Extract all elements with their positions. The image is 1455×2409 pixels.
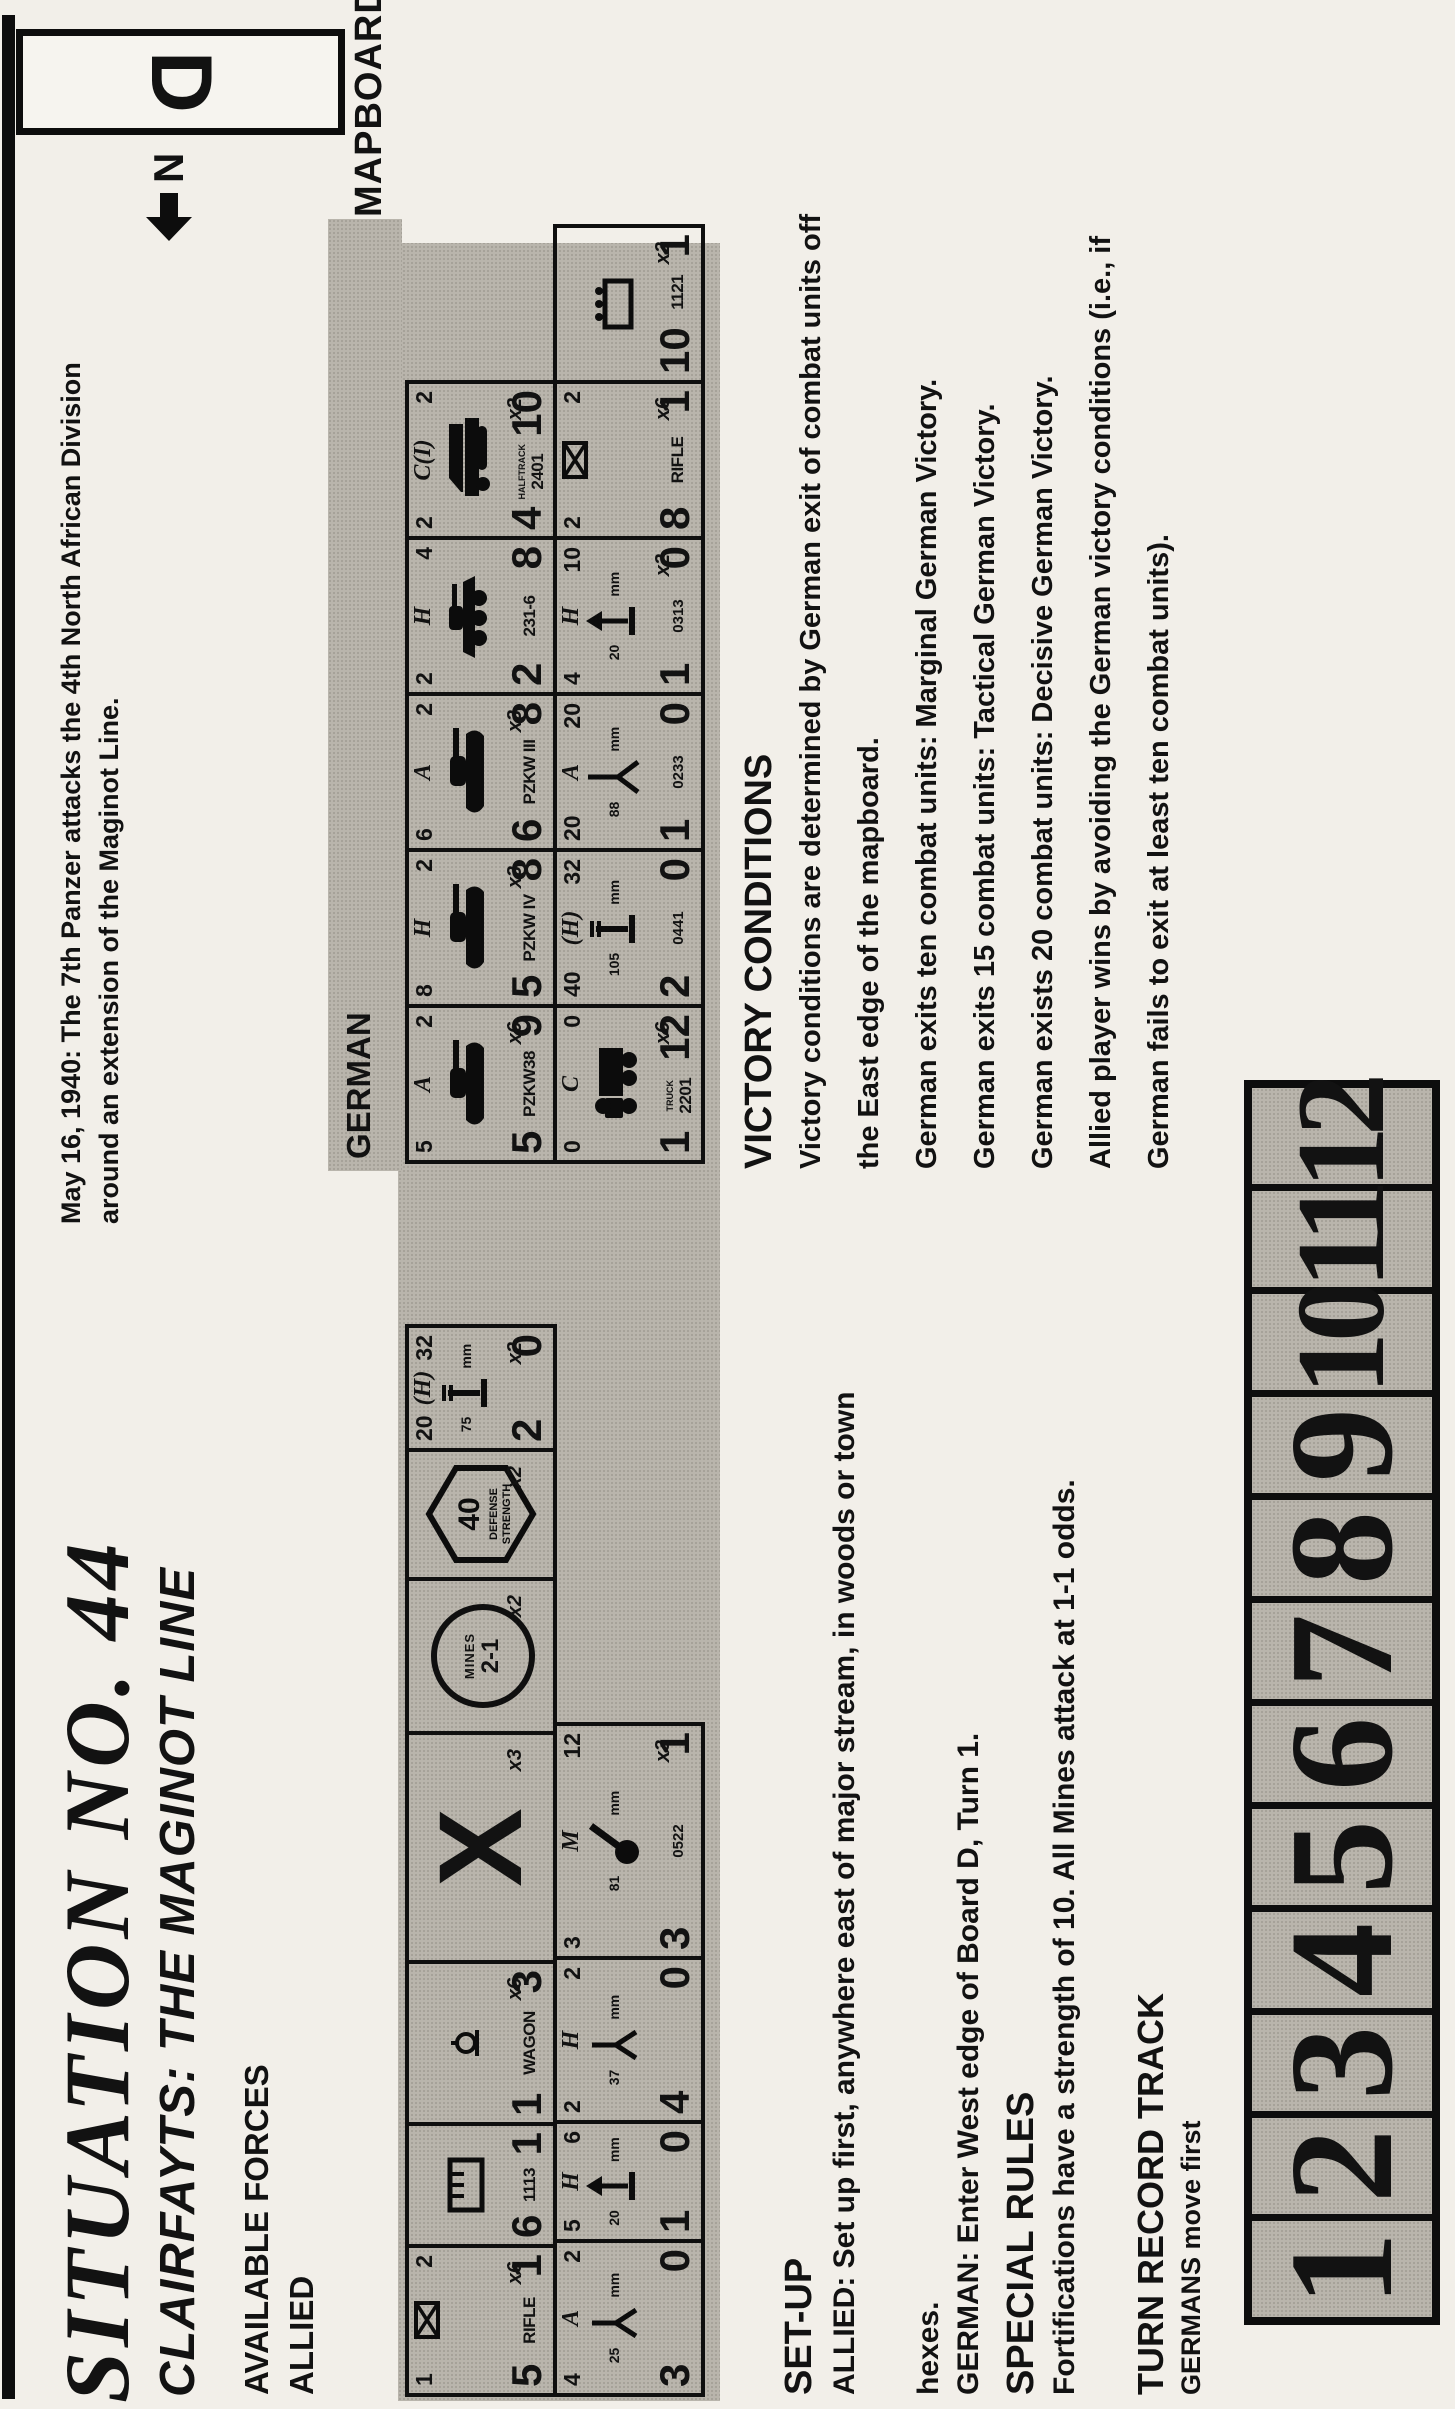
setup-heading: SET-UP <box>778 2258 821 2395</box>
situation-card: SITUATION NO. 44 CLAIRFAYTS: THE MAGINOT… <box>0 0 1455 2409</box>
counter-unit-name: WAGON <box>520 2011 539 2075</box>
counter-multiplier: x2 <box>504 1595 527 1617</box>
svg-text:DEFENSE: DEFENSE <box>488 1489 500 1541</box>
page-subtitle: CLAIRFAYTS: THE MAGINOT LINE <box>150 1567 206 2397</box>
gun-mm-label: mm <box>606 2137 622 2162</box>
counter-class-letter: H <box>410 540 437 692</box>
counter-box: 6A26PZKW III8x3 <box>405 692 557 852</box>
counter-class-letter: H <box>410 852 437 1004</box>
mines-label: MINES <box>462 1633 477 1679</box>
gun-mm-label: mm <box>606 572 622 597</box>
counter-box: 1WAGON3x6 <box>405 1960 557 2126</box>
counter-movement-value: 0 <box>653 1966 697 1989</box>
counter-range-value: 20 <box>559 703 586 729</box>
counter-multiplier: x6 <box>652 398 675 420</box>
counter-icon-zone: 88mm <box>583 696 645 848</box>
counter-defense-value: 6 <box>505 2215 549 2238</box>
counter-unit-name: 1121 <box>668 275 687 310</box>
counter-class-letter: C <box>558 1008 585 1160</box>
counter-box: 40(H)32105mm204410 <box>553 848 705 1008</box>
counter-multiplier: x2 <box>652 554 675 576</box>
mapboard-diagram: D <box>16 29 345 135</box>
counter-movement-value: 0 <box>653 2249 697 2272</box>
counter-movement-value: 0 <box>653 2130 697 2153</box>
counter-movement-value: 8 <box>505 546 549 569</box>
counter-unit-name: RIFLE <box>520 2297 539 2344</box>
counter-icon-zone: 75mm <box>435 1328 497 1448</box>
gun-caliber-label: 105 <box>606 953 622 976</box>
counter-multiplier: x2 <box>504 1466 527 1488</box>
counter-unit-name: 2201 <box>676 1078 695 1114</box>
counter-unit-name: 1113 <box>520 2168 539 2202</box>
turn-track-cell-3: 3 <box>1252 2008 1432 2111</box>
counter-range-value: 32 <box>559 859 586 885</box>
counter-multiplier: x3 <box>504 710 527 732</box>
counter-movement-value: 0 <box>653 702 697 725</box>
counter-range-value: 2 <box>559 1967 586 1980</box>
victory-line-5: German exists 20 combat units: Decisive … <box>1027 375 1060 1169</box>
counter-unit-name: PZKW38 <box>520 1051 539 1117</box>
counter-box: 20(H)3275mm20x2 <box>405 1324 557 1452</box>
north-letter: N <box>145 153 193 183</box>
mines-odds: 2-1 <box>477 1639 505 1674</box>
counter-multiplier: x2 <box>504 398 527 420</box>
counter-range-value: 0 <box>559 1015 586 1028</box>
counter-class-letter: M <box>558 1726 585 1956</box>
intro-text-2: around an extension of the Maginot Line. <box>90 362 128 1224</box>
counter-defense-value: 5 <box>505 1131 549 1154</box>
howitzer-icon <box>586 907 642 951</box>
counter-box: 1011211x2 <box>553 224 705 384</box>
counter-box: 2H42231-68 <box>405 536 557 696</box>
counter-range-value: 2 <box>411 2255 438 2268</box>
counter-defense-value: 1 <box>505 2093 549 2116</box>
counter-multiplier: x6 <box>504 2262 527 2284</box>
north-arrow-icon <box>140 189 198 243</box>
turn-track-cell-2: 2 <box>1252 2111 1432 2214</box>
turn-record-track-heading: TURN RECORD TRACK <box>1130 1993 1172 2395</box>
counter-defense-value: 5 <box>505 2364 549 2387</box>
counter-defense-value: 2 <box>505 1419 549 1442</box>
german-counter-row-1: 5A25PZKW389x68H25PZKW IV8x36A26PZKW III8… <box>405 384 557 1164</box>
mines-icon: MINES2-1 <box>431 1604 535 1708</box>
gun-caliber-label: 75 <box>458 1417 474 1433</box>
gun-caliber-label: 20 <box>606 2210 622 2226</box>
victory-line-6: Allied player wins by avoiding the Germa… <box>1085 236 1118 1169</box>
counter-unit-id: 0522 <box>670 1824 687 1857</box>
counter-box: 8H25PZKW IV8x3 <box>405 848 557 1008</box>
counter-unit-id: 0233 <box>670 755 687 788</box>
truck-silhouette-icon <box>587 1038 641 1130</box>
gun-mm-label: mm <box>606 2273 622 2298</box>
counter-unit-name: 2401 <box>528 454 547 490</box>
setup-line-1: ALLIED: Set up first, anywhere east of m… <box>828 1392 862 2396</box>
counter-icon-zone <box>583 1008 645 1160</box>
counter-icon-zone: 25mm <box>583 2243 645 2393</box>
counter-multiplier: x6 <box>652 1022 675 1044</box>
counter-box: 2C(I)24HALFTRACK240110x2 <box>405 380 557 540</box>
gun-mm-label: mm <box>606 1791 622 1816</box>
turn-track-cell-7: 7 <box>1252 1596 1432 1699</box>
intro-date: May 16, 1940: <box>56 1050 86 1224</box>
german-counter-row-2: 0C01TRUCK220112x640(H)32105mm20441020A20… <box>553 228 705 1164</box>
counter-box: 125RIFLE1x6 <box>405 2244 557 2397</box>
special-rules-line-1: Fortifications have a strength of 10. Al… <box>1048 1479 1082 2395</box>
turn-track-cell-8: 8 <box>1252 1493 1432 1596</box>
mines-counter-box: MINES2-1x2 <box>405 1577 557 1735</box>
counter-box: 228RIFLE1x6 <box>553 380 705 540</box>
counter-multiplier: x6 <box>504 1978 527 2000</box>
counter-box: 5A25PZKW389x6 <box>405 1004 557 1164</box>
counter-range-value: 6 <box>559 2131 586 2144</box>
gun-mm-label: mm <box>606 880 622 905</box>
turn-record-track: 123456789101112 <box>1244 1080 1440 2325</box>
tank-silhouette-icon <box>440 880 492 976</box>
counter-defense-value: 2 <box>653 975 697 998</box>
special-rules-heading: SPECIAL RULES <box>1000 2092 1043 2395</box>
counter-icon-zone: 20mm <box>583 540 645 692</box>
counter-range-value: 10 <box>559 547 586 573</box>
counter-range-value: 32 <box>411 1335 438 1361</box>
fort-counter-box: 40DEFENSESTRENGTHx2 <box>405 1448 557 1581</box>
counter-defense-value: 5 <box>505 975 549 998</box>
counter-unit-name: 231-6 <box>520 596 539 637</box>
counter-defense-value: 6 <box>505 819 549 842</box>
gun-caliber-label: 20 <box>606 645 622 661</box>
victory-line-7: German fails to exit at least ten combat… <box>1143 534 1176 1169</box>
block-counter-box: Xx3 <box>405 1731 557 1964</box>
counter-unit-name: PZKW III <box>520 740 539 805</box>
counter-range-value: 2 <box>411 703 438 716</box>
block-x-symbol: X <box>409 1735 553 1960</box>
victory-line-4: German exits 15 combat units: Tactical G… <box>969 403 1002 1169</box>
gun-caliber-label: 88 <box>606 802 622 818</box>
counter-multiplier: x2 <box>504 1342 527 1364</box>
counter-range-value: 2 <box>411 1015 438 1028</box>
counter-defense-value: 1 <box>653 663 697 686</box>
counter-box: 611131 <box>405 2122 557 2248</box>
counter-defense-value: 8 <box>653 507 697 530</box>
counter-class-letter: H <box>558 1960 585 2120</box>
counter-range-value: 4 <box>411 547 438 560</box>
at-gun-icon <box>588 2300 640 2346</box>
counter-unit-id: 0441 <box>670 911 687 944</box>
allied-heading: ALLIED <box>283 2276 321 2395</box>
top-rule <box>2 15 15 2399</box>
armored-car-silhouette-icon <box>441 570 491 662</box>
counter-defense-value: 1 <box>653 1131 697 1154</box>
allied-counter-row-2: 4A225mm305H620mm102H237mm403M1281mm30522… <box>553 1726 705 2397</box>
counter-multiplier: x6 <box>504 1022 527 1044</box>
counter-multiplier: x3 <box>652 1740 675 1762</box>
counter-defense-value: 1 <box>653 2210 697 2233</box>
counter-icon-zone: 105mm <box>583 852 645 1004</box>
carrier-icon <box>444 2154 488 2216</box>
counter-icon-zone: 37mm <box>583 1960 645 2120</box>
turn-track-cell-12: 12 <box>1252 1088 1432 1184</box>
aa-gun-icon <box>586 2164 642 2208</box>
counter-icon-zone: 81mm <box>583 1726 645 1956</box>
turn-track-cell-4: 4 <box>1252 1905 1432 2008</box>
turn-track-cell-11: 11 <box>1252 1184 1432 1287</box>
svg-text:40: 40 <box>453 1498 486 1531</box>
counter-unit-id: 0313 <box>670 599 687 632</box>
counter-defense-value: 3 <box>653 2364 697 2387</box>
turn-track-cell-6: 6 <box>1252 1699 1432 1802</box>
counter-box: 5H620mm10 <box>553 2120 705 2243</box>
gun-caliber-label: 25 <box>606 2348 622 2364</box>
setup-line-3: GERMAN: Enter West edge of Board D, Turn… <box>952 1733 986 2395</box>
counter-multiplier: x2 <box>652 242 675 264</box>
counter-box: 2H237mm40 <box>553 1956 705 2124</box>
counter-multiplier: x3 <box>504 1749 527 1771</box>
counter-box: 20A2088mm102330 <box>553 692 705 852</box>
counter-class-letter: C(I) <box>410 384 437 536</box>
mortar-icon <box>587 1818 641 1874</box>
scenario-intro: May 16, 1940: The 7th Panzer attacks the… <box>52 362 128 1224</box>
gun-mm-label: mm <box>606 1995 622 2020</box>
counter-range-value: 2 <box>559 2250 586 2263</box>
counter-class-letter: A <box>410 696 437 848</box>
counter-class-letter: A <box>558 2243 585 2393</box>
counter-icon-zone <box>583 384 645 536</box>
halftrack-silhouette-icon <box>441 414 491 506</box>
setup-line-2: hexes. <box>912 2302 946 2395</box>
counter-defense-value: 10 <box>653 327 697 374</box>
turn-track-cell-1: 1 <box>1252 2214 1432 2317</box>
counter-class-letter: A <box>410 1008 437 1160</box>
intro-line-1: May 16, 1940: The 7th Panzer attacks the… <box>52 362 90 1224</box>
counter-icon-zone <box>435 384 497 536</box>
counter-movement-value: 1 <box>505 2132 549 2155</box>
gun-mm-label: mm <box>458 1344 474 1369</box>
counter-defense-value: 3 <box>653 1927 697 1950</box>
howitzer-icon <box>438 1371 494 1415</box>
turn-track-cell-10: 10 <box>1252 1287 1432 1390</box>
counter-defense-value: 2 <box>505 663 549 686</box>
gun-caliber-label: 81 <box>606 1876 622 1892</box>
counter-box: 0C01TRUCK220112x6 <box>553 1004 705 1164</box>
tank-silhouette-icon <box>440 724 492 820</box>
allied-counter-row-1: 125RIFLE1x66111311WAGON3x6Xx3MINES2-1x24… <box>405 1328 557 2397</box>
wagon-icon <box>591 273 637 335</box>
page-title: SITUATION NO. 44 <box>44 1538 150 2403</box>
counter-icon-zone <box>435 852 497 1004</box>
counter-box: 4A225mm30 <box>553 2239 705 2397</box>
victory-conditions-heading: VICTORY CONDITIONS <box>738 754 781 1169</box>
counter-range-value: 2 <box>559 391 586 404</box>
counter-box: 4H1020mm103130x2 <box>553 536 705 696</box>
counter-icon-zone <box>435 1008 497 1160</box>
at-gun-icon <box>588 2022 640 2068</box>
counter-icon-zone <box>435 2126 497 2244</box>
german-heading: GERMAN <box>340 1012 378 1159</box>
victory-line-1: Victory conditions are determined by Ger… <box>795 214 828 1169</box>
counter-unit-name: PZKW IV <box>520 894 539 961</box>
counter-icon-zone <box>435 696 497 848</box>
board-letter: D <box>131 51 230 113</box>
victory-line-3: German exits ten combat units: Marginal … <box>911 379 944 1169</box>
victory-line-2: the East edge of the mapboard. <box>853 737 886 1169</box>
heavy-at-gun-icon <box>586 754 642 800</box>
tank-silhouette-icon <box>440 1036 492 1132</box>
counter-icon-zone <box>435 2248 497 2393</box>
svg-text:STRENGTH: STRENGTH <box>501 1484 513 1545</box>
germans-move-first-label: GERMANS move first <box>1176 2120 1207 2395</box>
counter-defense-value: 4 <box>653 2091 697 2114</box>
counter-multiplier: x3 <box>504 866 527 888</box>
counter-defense-value: 4 <box>505 507 549 530</box>
available-forces-heading: AVAILABLE FORCES <box>238 2064 276 2395</box>
gun-caliber-label: 37 <box>606 2070 622 2086</box>
turn-track-cell-9: 9 <box>1252 1390 1432 1493</box>
counter-icon-zone: 20mm <box>583 2124 645 2239</box>
counter-range-value: 2 <box>411 391 438 404</box>
turn-track-cell-5: 5 <box>1252 1802 1432 1905</box>
wagon-class-icon <box>451 2026 481 2060</box>
aa-gun-icon <box>586 599 642 643</box>
north-indicator: N <box>140 153 198 243</box>
counter-movement-value: 0 <box>653 858 697 881</box>
counter-range-value: 12 <box>559 1733 586 1759</box>
counter-icon-zone <box>435 540 497 692</box>
counter-icon-zone <box>583 228 645 380</box>
intro-text-1: The 7th Panzer attacks the 4th North Afr… <box>56 362 86 1042</box>
counter-box: 3M1281mm305221x3 <box>553 1722 705 1960</box>
mapboard-heading: MAPBOARD <box>348 0 391 217</box>
gun-mm-label: mm <box>606 727 622 752</box>
counter-defense-value: 1 <box>653 819 697 842</box>
counter-range-value: 2 <box>411 859 438 872</box>
counter-icon-zone <box>435 1964 497 2122</box>
counter-unit-name: RIFLE <box>668 437 687 484</box>
